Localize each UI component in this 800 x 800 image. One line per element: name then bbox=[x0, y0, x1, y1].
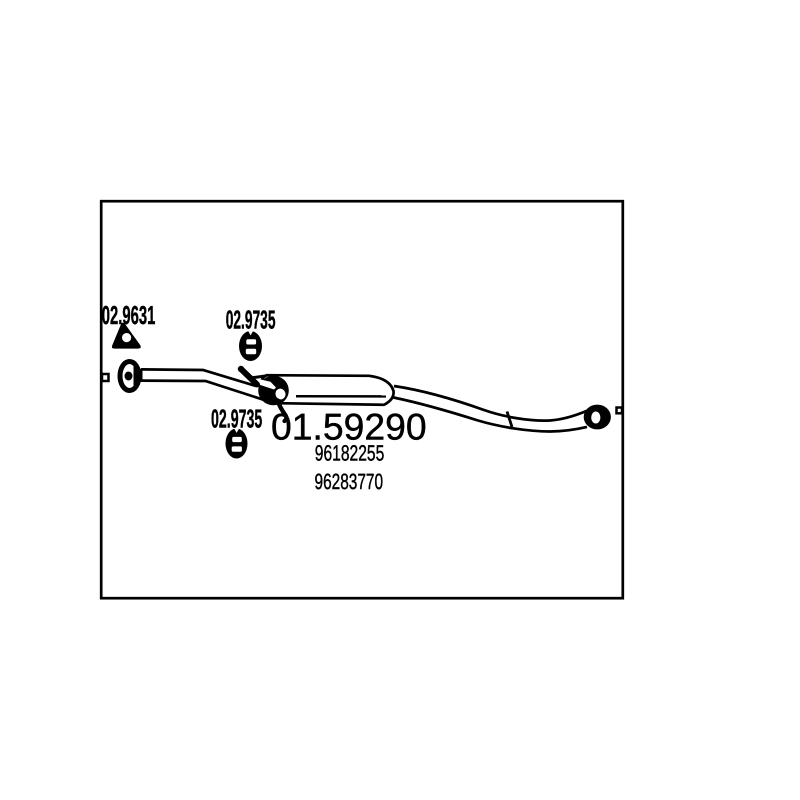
svg-text:02.9631: 02.9631 bbox=[102, 300, 156, 330]
svg-text:96283770: 96283770 bbox=[315, 469, 384, 494]
svg-text:96182255: 96182255 bbox=[315, 441, 385, 466]
svg-text:02.9735: 02.9735 bbox=[226, 305, 276, 335]
